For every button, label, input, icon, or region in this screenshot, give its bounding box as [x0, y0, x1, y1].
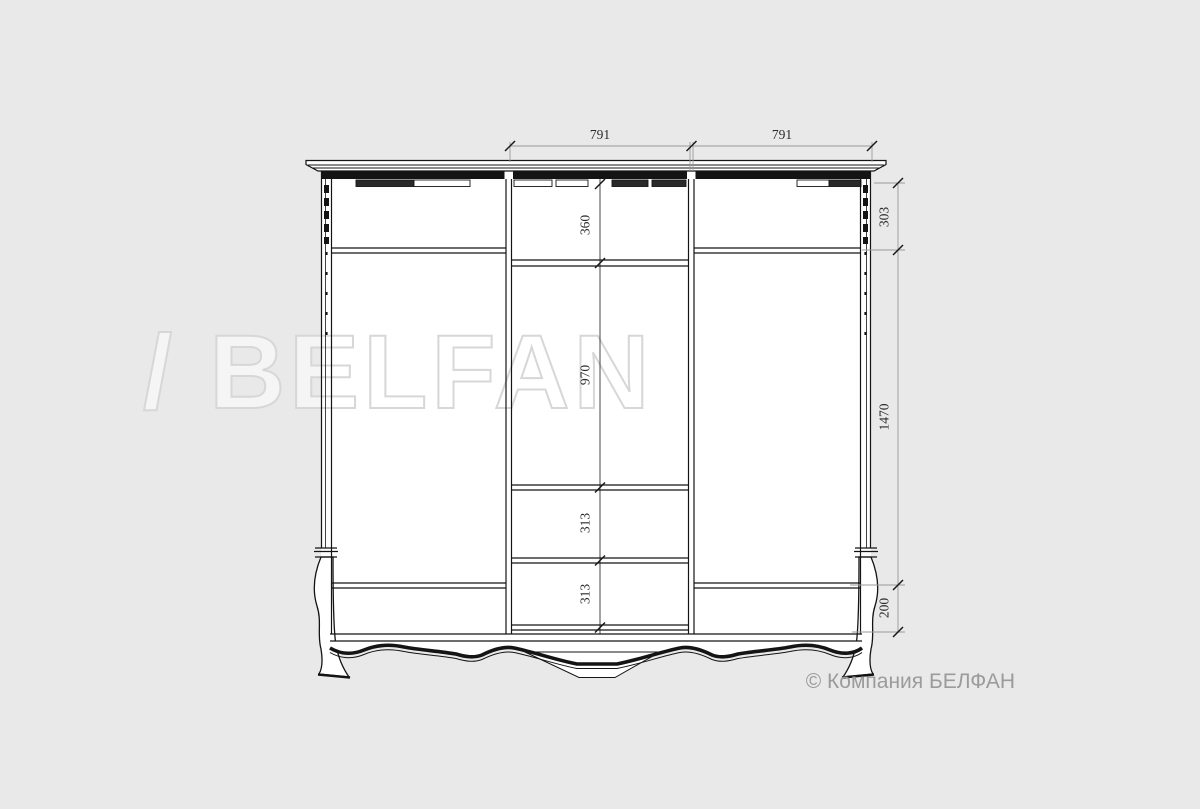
hinge-plate	[829, 180, 861, 187]
dim-label-inner-313b: 313	[578, 584, 593, 605]
hinge-plate	[612, 180, 648, 187]
dim-label-inner-970: 970	[578, 365, 593, 386]
dim-label-inner-313a: 313	[578, 513, 593, 534]
dim-label-inner-360: 360	[578, 215, 593, 236]
drawing-canvas: / BELFAN	[0, 0, 1200, 809]
dim-label-top-middle-791: 791	[590, 127, 610, 142]
hinge-plate	[414, 180, 470, 187]
hinge-plate	[514, 180, 552, 187]
copyright-text: © Компания БЕЛФАН	[806, 670, 1015, 693]
hinge-plate	[797, 180, 829, 187]
dim-label-right-303: 303	[877, 207, 892, 228]
page: { "page": { "background_color": "#e9e9e9…	[0, 0, 1200, 809]
dim-label-right-1470: 1470	[877, 403, 892, 430]
wardrobe-drawing: / BELFAN	[0, 0, 1200, 809]
hinge-plate	[356, 180, 414, 187]
hinge-plate	[556, 180, 588, 187]
dim-label-right-200: 200	[877, 598, 892, 619]
hinge-plate	[652, 180, 686, 187]
dim-label-top-right-791: 791	[772, 127, 792, 142]
